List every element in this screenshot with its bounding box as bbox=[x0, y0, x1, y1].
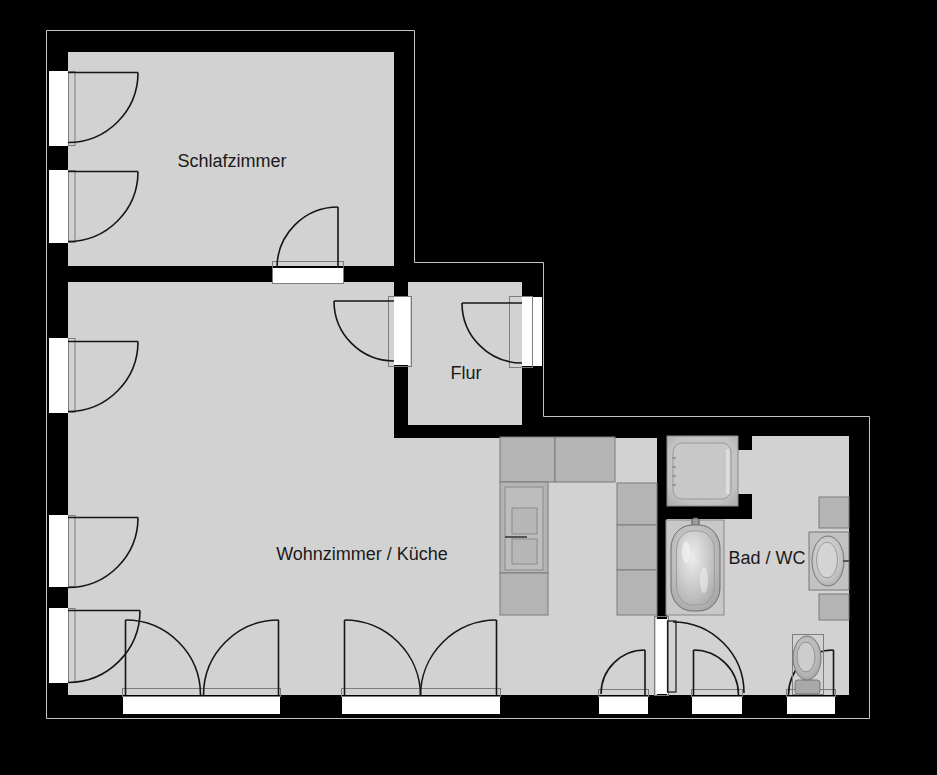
room-label-schlafzimmer: Schlafzimmer bbox=[177, 151, 286, 171]
wall-stub bbox=[660, 506, 752, 519]
kitchen-counter bbox=[500, 573, 548, 615]
window-opening bbox=[49, 338, 68, 413]
window-opening bbox=[787, 696, 835, 714]
door-opening bbox=[273, 268, 343, 283]
bathtub-highlight bbox=[700, 567, 708, 593]
floor-plan-canvas: Schlafzimmer Flur Wohnzimmer / Küche Bad… bbox=[0, 0, 937, 775]
door-opening bbox=[394, 297, 410, 365]
window-opening bbox=[123, 696, 280, 714]
bath-counter-upper bbox=[819, 497, 849, 528]
oven-door-lower bbox=[512, 539, 537, 564]
kitchen-counter bbox=[555, 437, 615, 482]
door-opening bbox=[656, 619, 667, 694]
window-opening bbox=[49, 515, 68, 587]
room-label-flur: Flur bbox=[451, 363, 482, 383]
oven-door-upper bbox=[512, 508, 537, 534]
toilet-seat bbox=[797, 642, 815, 672]
kitchen-counter bbox=[500, 437, 555, 482]
window-opening bbox=[342, 696, 500, 714]
wall-stub bbox=[738, 432, 752, 450]
floor-plan-drawing: Schlafzimmer Flur Wohnzimmer / Küche Bad… bbox=[0, 0, 937, 775]
bathtub bbox=[666, 518, 724, 615]
bathtub-highlight bbox=[682, 541, 690, 563]
shower-tray bbox=[667, 436, 738, 506]
washbasin-inner bbox=[817, 542, 838, 578]
toilet-cistern bbox=[795, 680, 820, 694]
window-opening bbox=[692, 696, 742, 714]
window-opening bbox=[49, 608, 68, 683]
kitchen-stove-unit bbox=[500, 482, 548, 573]
shower-glass bbox=[726, 449, 730, 494]
kitchen-tall-unit bbox=[617, 483, 657, 525]
kitchen-tall-unit bbox=[617, 570, 657, 615]
window-opening bbox=[49, 71, 68, 146]
shower-basin bbox=[673, 443, 731, 499]
window-opening bbox=[599, 696, 648, 714]
window-opening bbox=[49, 170, 68, 243]
bathtub-basin bbox=[677, 531, 715, 605]
bath-counter-lower bbox=[819, 594, 849, 620]
room-label-wohnzimmer-kueche: Wohnzimmer / Küche bbox=[276, 544, 448, 564]
wall-stub bbox=[738, 494, 752, 507]
kitchen-tall-unit bbox=[617, 525, 657, 570]
room-label-bad-wc: Bad / WC bbox=[728, 548, 805, 568]
